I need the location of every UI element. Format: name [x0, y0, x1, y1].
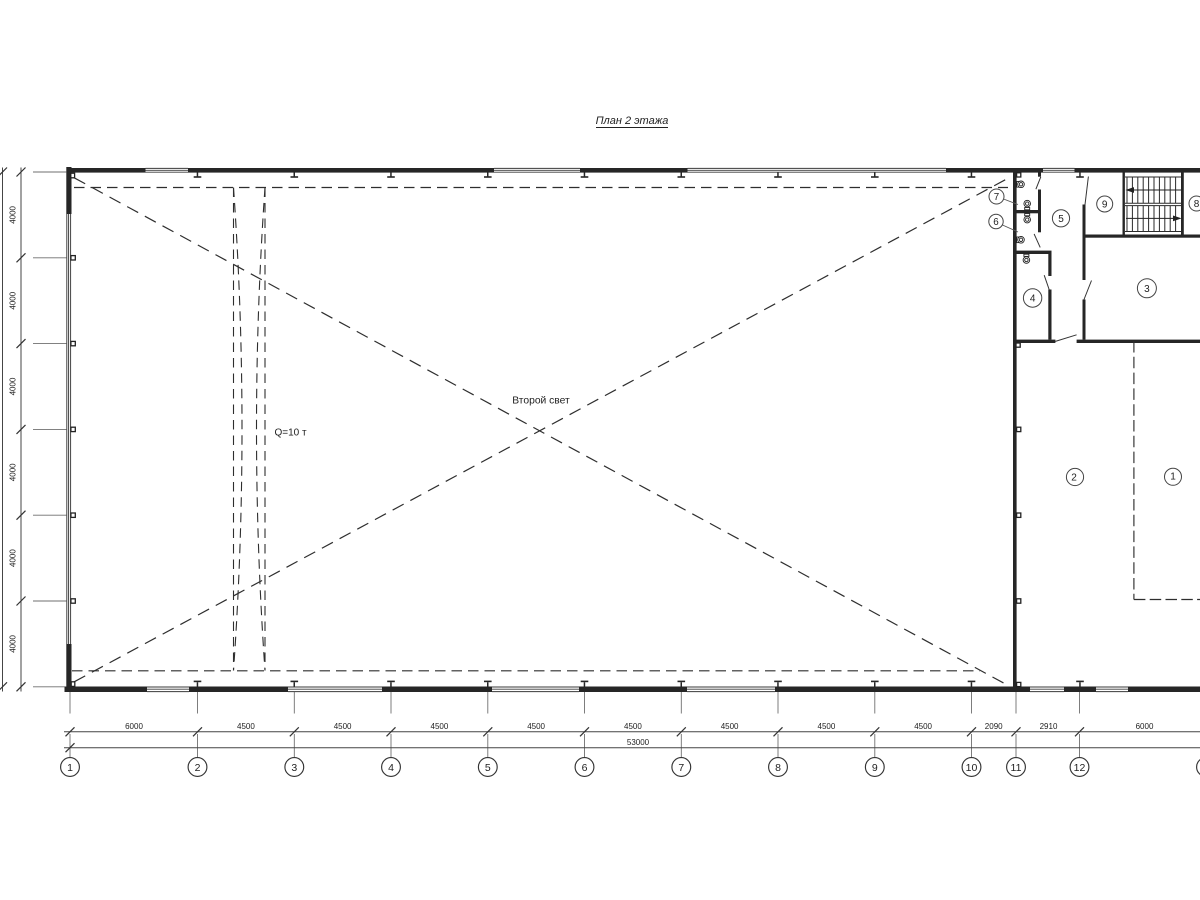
svg-text:4500: 4500 [431, 722, 449, 731]
svg-text:11: 11 [1011, 762, 1022, 774]
svg-text:7: 7 [678, 762, 684, 774]
svg-text:4500: 4500 [721, 722, 739, 731]
svg-text:4: 4 [388, 762, 394, 774]
svg-text:4000: 4000 [9, 549, 18, 567]
svg-text:1: 1 [67, 762, 73, 774]
svg-text:4500: 4500 [624, 722, 642, 731]
svg-text:6: 6 [993, 217, 999, 228]
svg-text:5: 5 [485, 762, 491, 774]
svg-text:53000: 53000 [627, 738, 650, 747]
svg-text:3: 3 [291, 762, 297, 774]
svg-text:4500: 4500 [237, 722, 255, 731]
svg-text:9: 9 [872, 762, 878, 774]
svg-text:Q=10 т: Q=10 т [275, 428, 308, 439]
svg-text:2910: 2910 [1040, 722, 1058, 731]
svg-text:6: 6 [582, 762, 588, 774]
svg-text:4500: 4500 [914, 722, 932, 731]
svg-text:4500: 4500 [334, 722, 352, 731]
svg-text:7: 7 [994, 192, 999, 203]
svg-text:2090: 2090 [985, 722, 1003, 731]
svg-text:Второй свет: Второй свет [512, 396, 570, 407]
svg-text:8: 8 [775, 762, 781, 774]
svg-text:4000: 4000 [9, 377, 18, 395]
svg-text:1: 1 [1170, 472, 1176, 483]
svg-text:4500: 4500 [818, 722, 836, 731]
svg-text:2: 2 [195, 762, 201, 774]
svg-text:9: 9 [1102, 200, 1108, 211]
svg-text:2: 2 [1071, 473, 1077, 484]
svg-text:4000: 4000 [9, 634, 18, 652]
svg-text:План 2 этажа: План 2 этажа [596, 115, 669, 127]
svg-text:4500: 4500 [527, 722, 545, 731]
svg-text:10: 10 [966, 762, 978, 774]
svg-text:3: 3 [1144, 284, 1150, 295]
svg-text:8: 8 [1194, 199, 1200, 210]
svg-text:4000: 4000 [9, 291, 18, 309]
svg-text:4000: 4000 [9, 463, 18, 481]
svg-text:6000: 6000 [125, 722, 143, 731]
svg-text:12: 12 [1074, 762, 1086, 774]
svg-text:4000: 4000 [9, 205, 18, 223]
svg-text:4: 4 [1030, 294, 1036, 305]
svg-text:5: 5 [1058, 214, 1064, 225]
svg-text:6000: 6000 [1136, 722, 1154, 731]
